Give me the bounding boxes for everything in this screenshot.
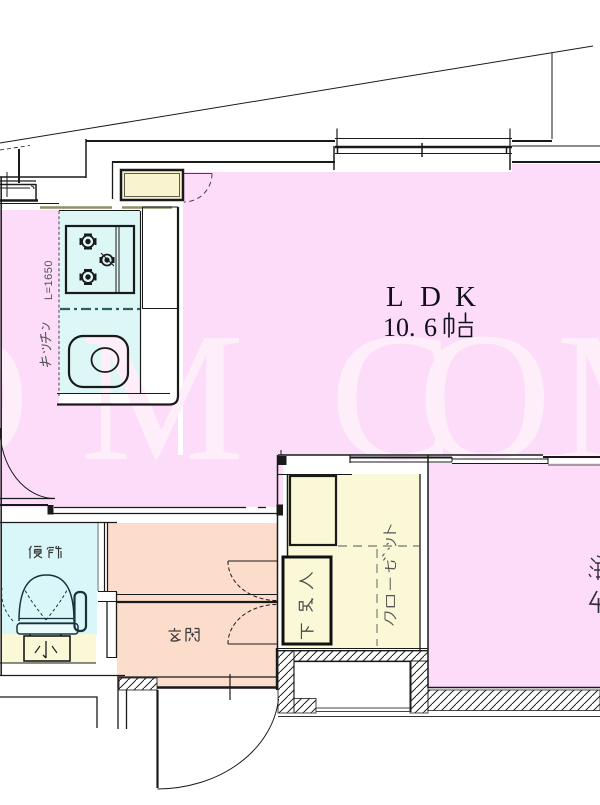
svg-text:L: L bbox=[386, 281, 404, 313]
svg-text:L=1650: L=1650 bbox=[43, 260, 55, 300]
svg-text:K: K bbox=[455, 281, 476, 313]
svg-text:M: M bbox=[556, 295, 600, 500]
svg-text:O: O bbox=[0, 295, 30, 500]
svg-text:D: D bbox=[420, 281, 441, 313]
svg-text:M: M bbox=[80, 295, 245, 500]
svg-text:O: O bbox=[418, 295, 552, 500]
svg-text:10.: 10. bbox=[383, 313, 416, 342]
svg-text:6: 6 bbox=[424, 313, 437, 342]
